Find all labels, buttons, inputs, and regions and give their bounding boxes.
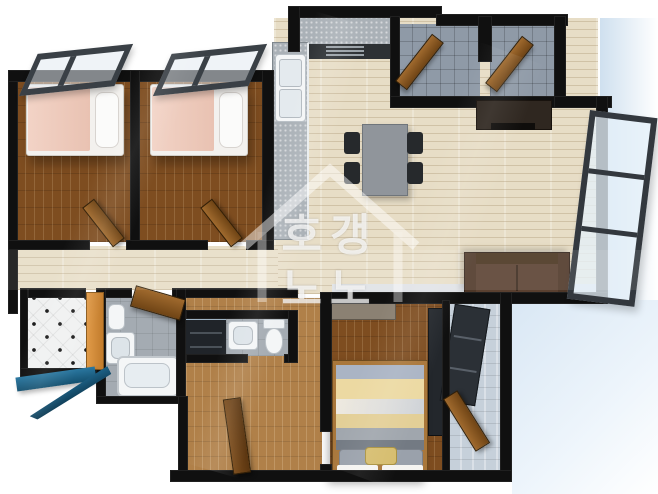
wall-bath1-bottom — [96, 396, 186, 404]
bathtub-inner — [124, 363, 170, 388]
window-crossbar — [588, 168, 644, 180]
laundry-niche-shelf-line2 — [190, 346, 222, 348]
exterior-shadow-bottom-right — [512, 300, 658, 494]
laundry-niche-shelf-line — [190, 332, 222, 334]
window-crossbar — [581, 226, 637, 238]
watermark-text-line1: 호갱 — [232, 214, 428, 258]
shelf-line — [454, 335, 482, 341]
wall-right-entry — [554, 16, 566, 108]
wall-top-entry — [436, 14, 568, 26]
watermark: 호갱 노노 — [232, 152, 428, 330]
dining-chair — [407, 132, 423, 154]
dining-chair — [344, 132, 360, 154]
bed1-blanket — [28, 87, 90, 151]
wall-master-right — [500, 292, 512, 482]
watermark-text-line2: 노노 — [232, 268, 428, 312]
wall-entry-left — [390, 16, 400, 108]
wall-bedrooms-bottom-b — [126, 240, 208, 250]
bathroom1-toilet — [108, 304, 125, 330]
bathtub — [117, 356, 179, 397]
wall-kitchen-corner — [288, 6, 300, 52]
shelf-line — [449, 367, 477, 373]
wall-top-kitchen — [288, 6, 442, 18]
floorplan-canvas: 호갱 노노 — [0, 0, 658, 494]
window-mullion — [57, 56, 76, 86]
bed2-pillow — [219, 92, 243, 148]
